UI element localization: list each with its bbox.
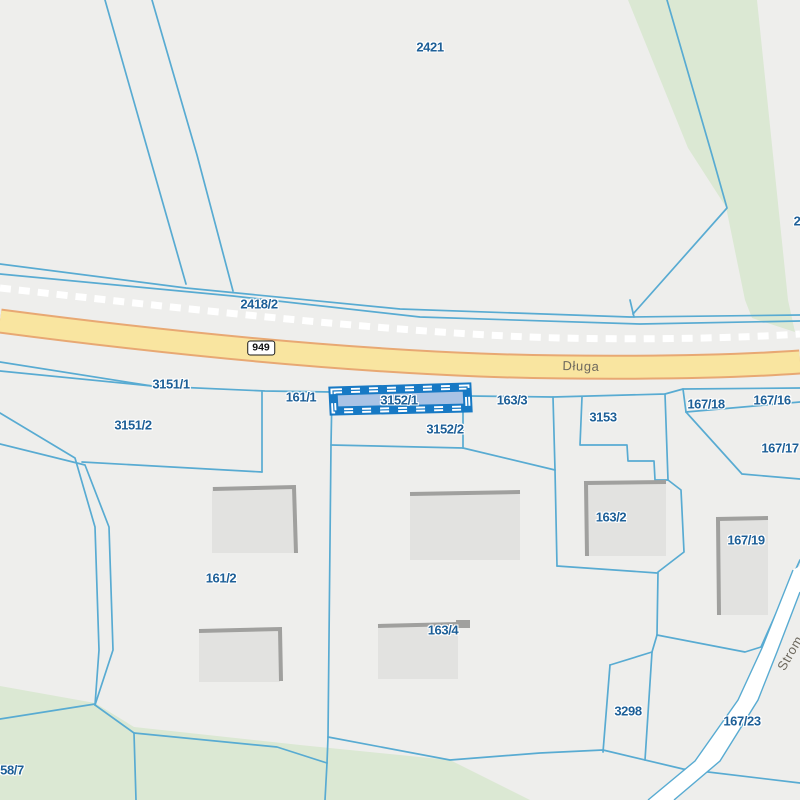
parcel-label-161-2[interactable]: 161/2 <box>206 571 237 586</box>
street-name-D-uga: Długa <box>562 358 599 374</box>
parcel-label-2418-2[interactable]: 2418/2 <box>240 297 277 312</box>
parcel-label-58-7[interactable]: 58/7 <box>0 763 24 778</box>
parcel-label-3152-2[interactable]: 3152/2 <box>426 422 463 437</box>
parcel-label-167-18[interactable]: 167/18 <box>687 397 724 412</box>
parcel-label-3298[interactable]: 3298 <box>614 704 641 719</box>
parcel-label-167-23[interactable]: 167/23 <box>723 714 760 729</box>
parcel-label-163-3[interactable]: 163/3 <box>497 393 528 408</box>
parcel-label-167-19[interactable]: 167/19 <box>727 533 764 548</box>
parcel-label-3153[interactable]: 3153 <box>589 410 616 425</box>
parcel-label-2[interactable]: 2 <box>794 214 800 229</box>
parcel-label-3151-2[interactable]: 3151/2 <box>114 418 151 433</box>
parcel-label-2421[interactable]: 2421 <box>416 40 443 55</box>
parcel-label-3151-1[interactable]: 3151/1 <box>152 377 189 392</box>
parcel-label-167-16[interactable]: 167/16 <box>753 393 790 408</box>
parcel-label-161-1[interactable]: 161/1 <box>286 390 317 405</box>
parcel-label-163-4[interactable]: 163/4 <box>428 623 459 638</box>
road-shield-949: 949 <box>247 341 275 356</box>
parcel-label-163-2[interactable]: 163/2 <box>596 510 627 525</box>
parcel-label-167-17[interactable]: 167/17 <box>761 441 798 456</box>
map-viewport[interactable]: 24212418/23151/1161/13152/1163/3167/1816… <box>0 0 800 800</box>
parcel-label-3152-1[interactable]: 3152/1 <box>380 393 417 408</box>
